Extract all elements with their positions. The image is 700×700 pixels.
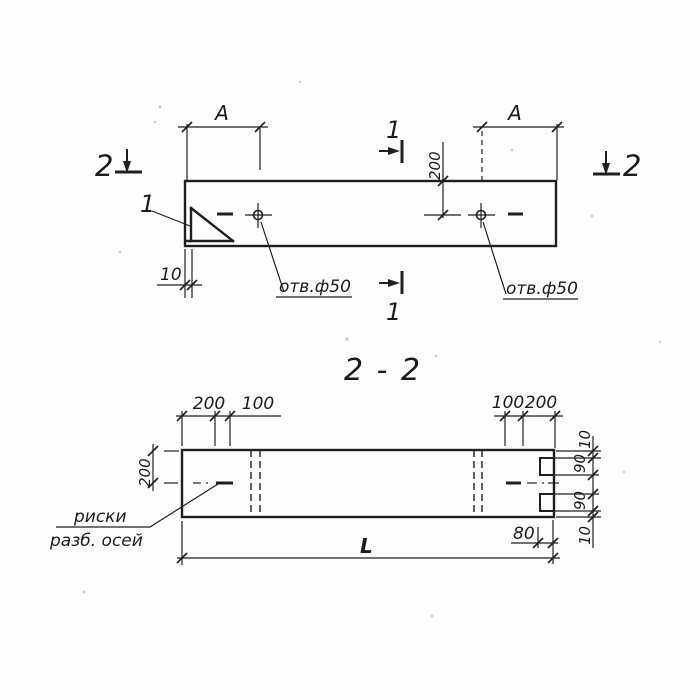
dim-10-label: 10 bbox=[160, 265, 182, 285]
dim-a-right bbox=[473, 122, 564, 180]
chain-10-top-label: 10 bbox=[576, 430, 594, 449]
dim-left-100-label: 100 bbox=[242, 394, 274, 414]
section-1-marker-bottom bbox=[379, 271, 402, 294]
end-notch-bottom bbox=[540, 494, 554, 511]
section-1-label-bottom: 1 bbox=[386, 298, 401, 326]
dim-a-left-label: A bbox=[213, 101, 229, 125]
section-title: 2 - 2 bbox=[344, 353, 422, 388]
dim-200-left-label: 200 bbox=[136, 458, 154, 487]
drawing-canvas: 1 2 2 1 1 bbox=[0, 0, 700, 700]
dim-right-100-label: 100 bbox=[492, 393, 524, 413]
dim-a-right-label: A bbox=[506, 101, 522, 125]
chain-90-top-label: 90 bbox=[571, 454, 589, 473]
hole-label-left: отв.ф50 bbox=[279, 277, 351, 297]
section-2-label-right: 2 bbox=[623, 149, 641, 183]
dims-top-right bbox=[494, 411, 563, 448]
hole-right bbox=[468, 203, 495, 228]
section-outline bbox=[182, 450, 554, 517]
dim-length-label: L bbox=[360, 534, 373, 558]
dim-80-label: 80 bbox=[513, 524, 535, 544]
detail-callout-label: 1 bbox=[140, 190, 155, 218]
dim-200-top-view-label: 200 bbox=[426, 151, 444, 180]
section-2-marker-left bbox=[115, 149, 142, 173]
dim-left-200-label: 200 bbox=[193, 394, 225, 414]
hole-label-right: отв.ф50 bbox=[506, 279, 578, 299]
end-notch-top bbox=[540, 458, 554, 475]
technical-drawing: 1 2 2 1 1 bbox=[0, 0, 700, 700]
hidden-lines-left bbox=[251, 450, 260, 517]
chain-10-bottom-label: 10 bbox=[576, 526, 594, 545]
dim-right-200-label: 200 bbox=[525, 393, 557, 413]
axis-note-line2: разб. осей bbox=[49, 531, 143, 551]
section-1-label-top: 1 bbox=[386, 116, 401, 144]
section-view: 2 - 2 bbox=[49, 353, 601, 565]
dims-top-left bbox=[176, 411, 281, 446]
axis-note-line1: риски bbox=[73, 507, 127, 527]
section-2-label-left: 2 bbox=[95, 149, 113, 183]
hole-left bbox=[245, 203, 272, 228]
top-view: 1 2 2 1 1 bbox=[95, 101, 641, 326]
chain-90-bottom-label: 90 bbox=[571, 491, 589, 510]
beam-outline bbox=[185, 181, 556, 246]
hidden-lines-right bbox=[474, 450, 482, 517]
dim-a-left bbox=[178, 122, 268, 180]
section-2-marker-right bbox=[593, 151, 620, 175]
